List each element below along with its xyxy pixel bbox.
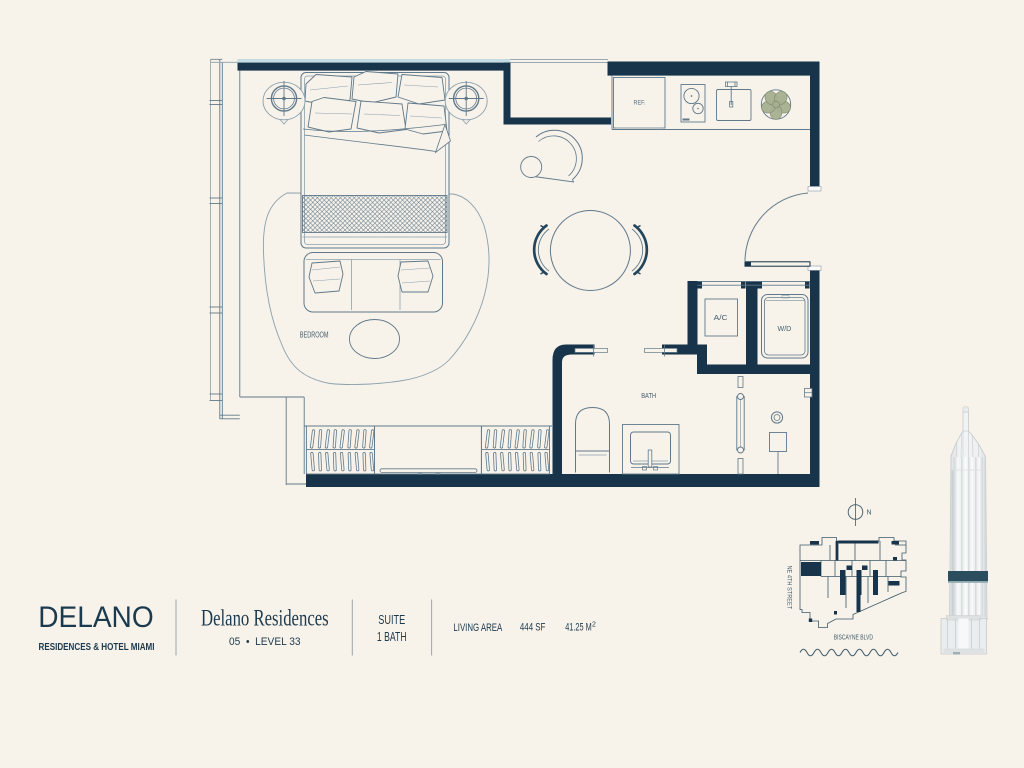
svg-text:LIVING AREA: LIVING AREA	[453, 622, 502, 634]
svg-text:W/D: W/D	[778, 324, 792, 333]
svg-text:SUITE: SUITE	[378, 612, 405, 627]
svg-text:41.25 M: 41.25 M	[565, 622, 592, 634]
svg-text:BISCAYNE BLVD: BISCAYNE BLVD	[834, 634, 873, 641]
svg-text:05 • LEVEL 33: 05 • LEVEL 33	[229, 636, 301, 648]
svg-text:2: 2	[592, 622, 596, 629]
svg-text:REF.: REF.	[634, 100, 646, 106]
svg-text:NE 4TH STREET: NE 4TH STREET	[786, 566, 793, 610]
svg-text:DELANO: DELANO	[38, 601, 154, 634]
svg-text:Delano Residences: Delano Residences	[201, 605, 329, 630]
svg-text:RESIDENCES & HOTEL MIAMI: RESIDENCES & HOTEL MIAMI	[39, 642, 155, 653]
svg-text:BEDROOM: BEDROOM	[300, 330, 329, 339]
svg-text:BATH: BATH	[641, 391, 656, 400]
svg-text:N: N	[867, 510, 872, 517]
svg-text:1 BATH: 1 BATH	[377, 629, 407, 644]
svg-text:A/C: A/C	[714, 313, 729, 322]
svg-text:444 SF: 444 SF	[520, 622, 546, 634]
